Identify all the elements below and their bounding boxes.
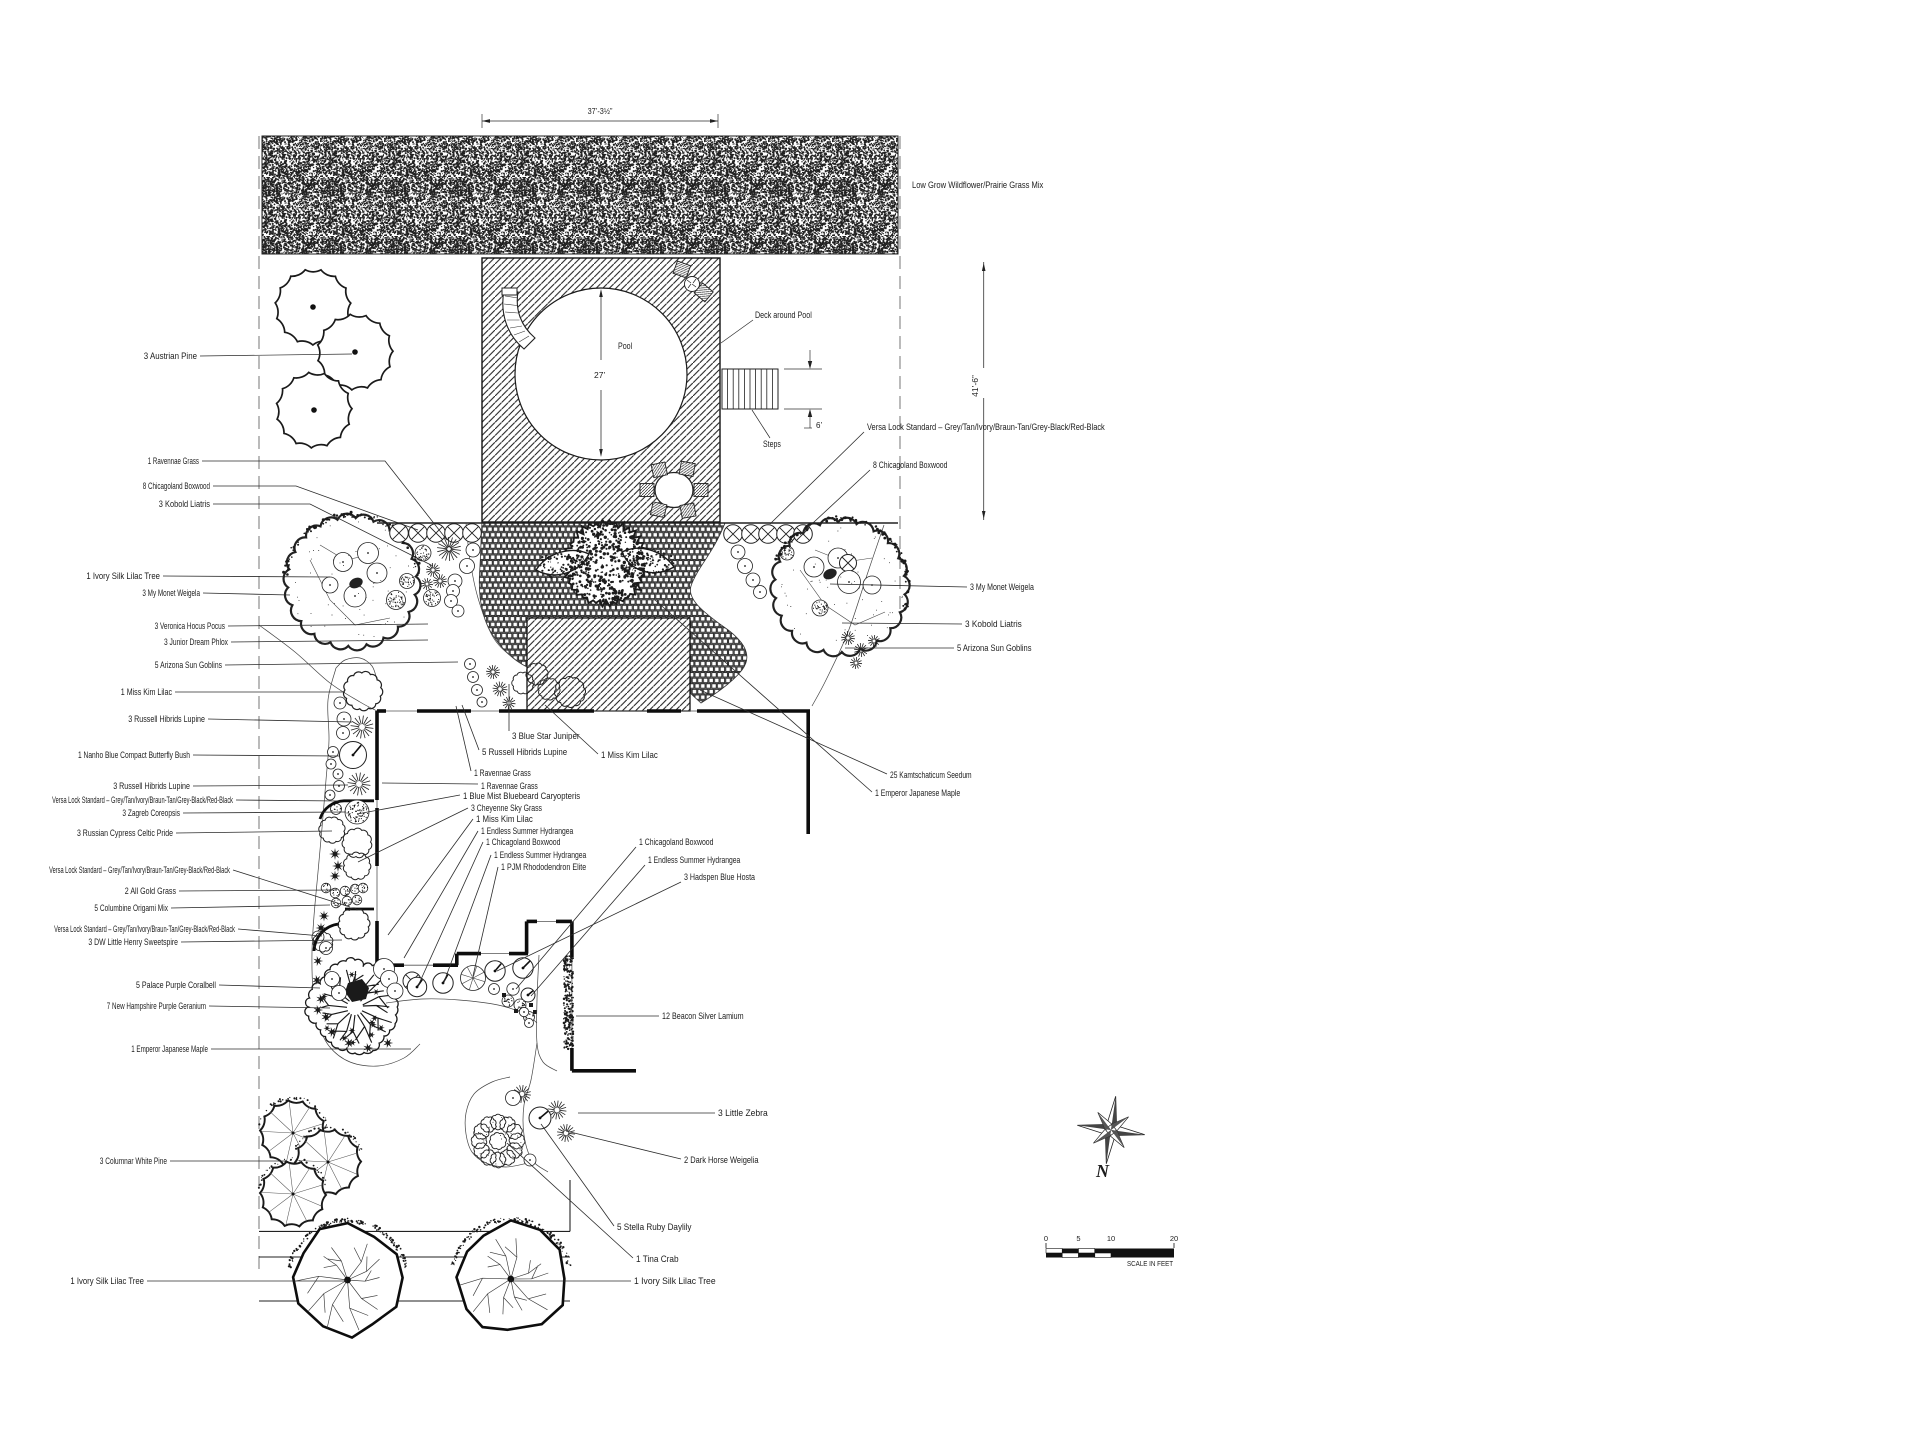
svg-text:3 Kobold Liatris: 3 Kobold Liatris <box>159 499 211 509</box>
svg-text:10: 10 <box>1107 1234 1115 1243</box>
svg-text:SCALE IN FEET: SCALE IN FEET <box>1127 1259 1173 1268</box>
svg-text:Versa Lock Standard – Grey/Tan: Versa Lock Standard – Grey/Tan/Ivory/Bra… <box>49 865 230 875</box>
svg-text:Steps: Steps <box>763 439 781 449</box>
svg-text:N: N <box>1095 1161 1110 1181</box>
svg-text:3 Blue Star Juniper: 3 Blue Star Juniper <box>512 731 580 741</box>
svg-text:3 My Monet Weigela: 3 My Monet Weigela <box>970 582 1034 592</box>
svg-text:2 Dark Horse Weigelia: 2 Dark Horse Weigelia <box>684 1155 759 1165</box>
svg-text:Versa Lock Standard – Grey/Tan: Versa Lock Standard – Grey/Tan/Ivory/Bra… <box>54 924 235 934</box>
svg-text:5 Palace Purple Coralbell: 5 Palace Purple Coralbell <box>136 980 216 990</box>
svg-text:7 New Hampshire Purple Geraniu: 7 New Hampshire Purple Geranium <box>107 1001 206 1011</box>
svg-text:1 Endless Summer Hydrangea: 1 Endless Summer Hydrangea <box>481 826 573 836</box>
svg-text:3 Russell Hibrids Lupine: 3 Russell Hibrids Lupine <box>128 714 205 724</box>
svg-text:41’-6”: 41’-6” <box>970 375 980 397</box>
svg-text:5 Arizona Sun Goblins: 5 Arizona Sun Goblins <box>957 643 1032 653</box>
svg-text:5 Stella Ruby Daylily: 5 Stella Ruby Daylily <box>617 1222 692 1232</box>
svg-text:5 Russell Hibrids Lupine: 5 Russell Hibrids Lupine <box>482 747 567 757</box>
svg-text:3 Columnar White Pine: 3 Columnar White Pine <box>100 1156 167 1166</box>
svg-text:1 Blue Mist Bluebeard Caryopte: 1 Blue Mist Bluebeard Caryopteris <box>463 791 581 801</box>
svg-text:1 Emperor Japanese Maple: 1 Emperor Japanese Maple <box>131 1044 208 1054</box>
svg-text:8 Chicagoland Boxwood: 8 Chicagoland Boxwood <box>873 460 948 470</box>
svg-text:5 Columbine Origami Mix: 5 Columbine Origami Mix <box>94 903 168 913</box>
svg-text:3 Austrian Pine: 3 Austrian Pine <box>144 351 197 361</box>
svg-text:Versa Lock Standard – Grey/Tan: Versa Lock Standard – Grey/Tan/Ivory/Bra… <box>52 795 233 805</box>
svg-text:Deck around Pool: Deck around Pool <box>755 310 812 320</box>
svg-text:1 Ivory Silk Lilac Tree: 1 Ivory Silk Lilac Tree <box>634 1276 716 1286</box>
svg-text:Versa Lock Standard – Grey/Tan: Versa Lock Standard – Grey/Tan/Ivory/Bra… <box>867 422 1105 432</box>
svg-text:3 Zagreb Coreopsis: 3 Zagreb Coreopsis <box>122 808 180 818</box>
svg-text:1 Miss Kim Lilac: 1 Miss Kim Lilac <box>121 687 173 697</box>
svg-text:6’: 6’ <box>816 421 822 430</box>
svg-text:3 Junior Dream Phlox: 3 Junior Dream Phlox <box>164 637 228 647</box>
svg-text:1 Endless Summer Hydrangea: 1 Endless Summer Hydrangea <box>648 855 740 865</box>
svg-text:Low Grow Wildflower/Prairie Gr: Low Grow Wildflower/Prairie Grass Mix <box>912 180 1044 190</box>
svg-text:25 Kamtschaticum Seedum: 25 Kamtschaticum Seedum <box>890 770 972 780</box>
svg-text:20: 20 <box>1170 1234 1178 1243</box>
svg-text:0: 0 <box>1044 1234 1048 1243</box>
svg-text:1 Chicagoland Boxwood: 1 Chicagoland Boxwood <box>486 837 561 847</box>
svg-text:3 Veronica Hocus Pocus: 3 Veronica Hocus Pocus <box>155 621 226 631</box>
svg-text:1 Endless Summer Hydrangea: 1 Endless Summer Hydrangea <box>494 850 586 860</box>
svg-text:5: 5 <box>1076 1234 1080 1243</box>
svg-text:1 Ravennae Grass: 1 Ravennae Grass <box>481 781 538 791</box>
svg-text:1 Ravennae Grass: 1 Ravennae Grass <box>148 456 200 466</box>
svg-text:3 Cheyenne Sky Grass: 3 Cheyenne Sky Grass <box>471 803 542 813</box>
svg-text:27’: 27’ <box>594 370 605 380</box>
svg-text:37’-3½”: 37’-3½” <box>588 106 613 116</box>
svg-text:1 Chicagoland Boxwood: 1 Chicagoland Boxwood <box>639 837 714 847</box>
svg-text:Pool: Pool <box>618 341 632 351</box>
svg-text:2 All Gold Grass: 2 All Gold Grass <box>125 886 177 896</box>
svg-text:1 Miss Kim Lilac: 1 Miss Kim Lilac <box>476 814 533 824</box>
svg-text:12 Beacon Silver Lamium: 12 Beacon Silver Lamium <box>662 1011 744 1021</box>
svg-text:3 Kobold Liatris: 3 Kobold Liatris <box>965 619 1022 629</box>
svg-text:3 Hadspen Blue Hosta: 3 Hadspen Blue Hosta <box>684 872 755 882</box>
svg-text:3 Russell Hibrids Lupine: 3 Russell Hibrids Lupine <box>113 781 190 791</box>
svg-text:1 Ravennae Grass: 1 Ravennae Grass <box>474 768 531 778</box>
svg-text:8 Chicagoland Boxwood: 8 Chicagoland Boxwood <box>143 481 210 491</box>
svg-text:3 DW Little Henry Sweetspire: 3 DW Little Henry Sweetspire <box>88 937 178 947</box>
svg-text:1 Ivory Silk Lilac Tree: 1 Ivory Silk Lilac Tree <box>70 1276 144 1286</box>
svg-text:1 Ivory Silk Lilac Tree: 1 Ivory Silk Lilac Tree <box>86 571 160 581</box>
svg-text:1 Emperor Japanese Maple: 1 Emperor Japanese Maple <box>875 788 960 798</box>
svg-text:3 Russian Cypress Celtic Pride: 3 Russian Cypress Celtic Pride <box>77 828 173 838</box>
svg-text:1 Nanho Blue Compact Butterfly: 1 Nanho Blue Compact Butterfly Bush <box>78 750 190 760</box>
svg-text:1 Tina Crab: 1 Tina Crab <box>636 1254 679 1264</box>
svg-text:1 PJM Rhododendron Elite: 1 PJM Rhododendron Elite <box>501 862 586 872</box>
svg-text:3 My Monet Weigela: 3 My Monet Weigela <box>142 588 200 598</box>
svg-text:1 Miss Kim Lilac: 1 Miss Kim Lilac <box>601 750 658 760</box>
svg-text:3 Little Zebra: 3 Little Zebra <box>718 1108 768 1118</box>
svg-text:5 Arizona Sun Goblins: 5 Arizona Sun Goblins <box>155 660 223 670</box>
